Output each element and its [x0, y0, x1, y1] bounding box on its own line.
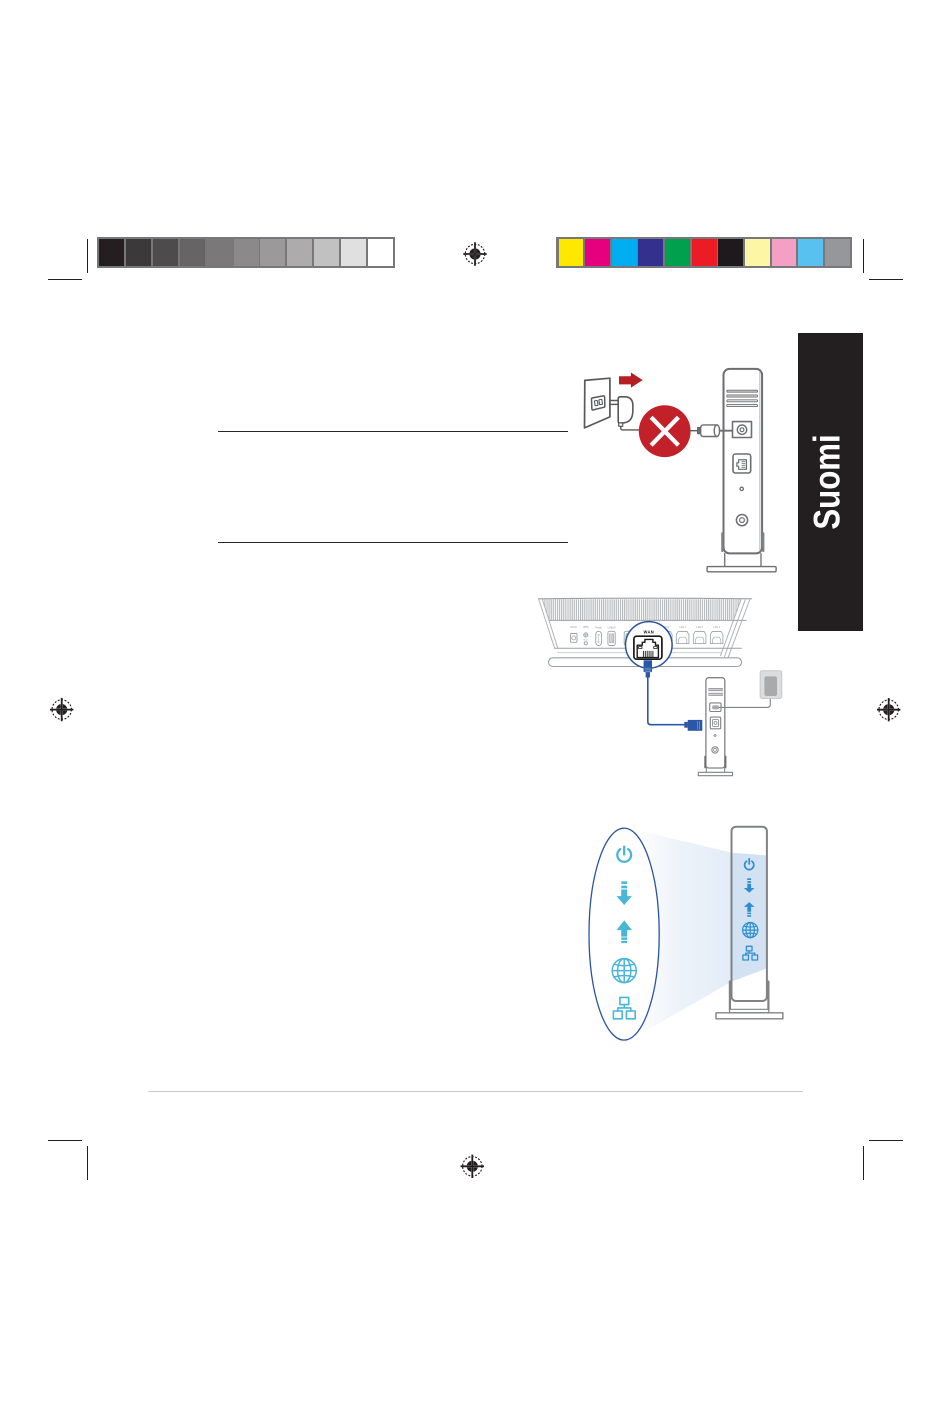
svg-text:Reset: Reset — [583, 639, 588, 642]
svg-text:USB3.0: USB3.0 — [607, 626, 616, 629]
svg-text:LAN 2: LAN 2 — [679, 626, 686, 629]
svg-text:LAN 3: LAN 3 — [696, 626, 703, 629]
svg-text:Power: Power — [595, 626, 602, 629]
svg-text:DCIN: DCIN — [571, 626, 577, 629]
svg-text:LAN 4: LAN 4 — [713, 626, 720, 629]
svg-text:WAN: WAN — [643, 629, 654, 634]
svg-text:WPS: WPS — [583, 626, 589, 629]
